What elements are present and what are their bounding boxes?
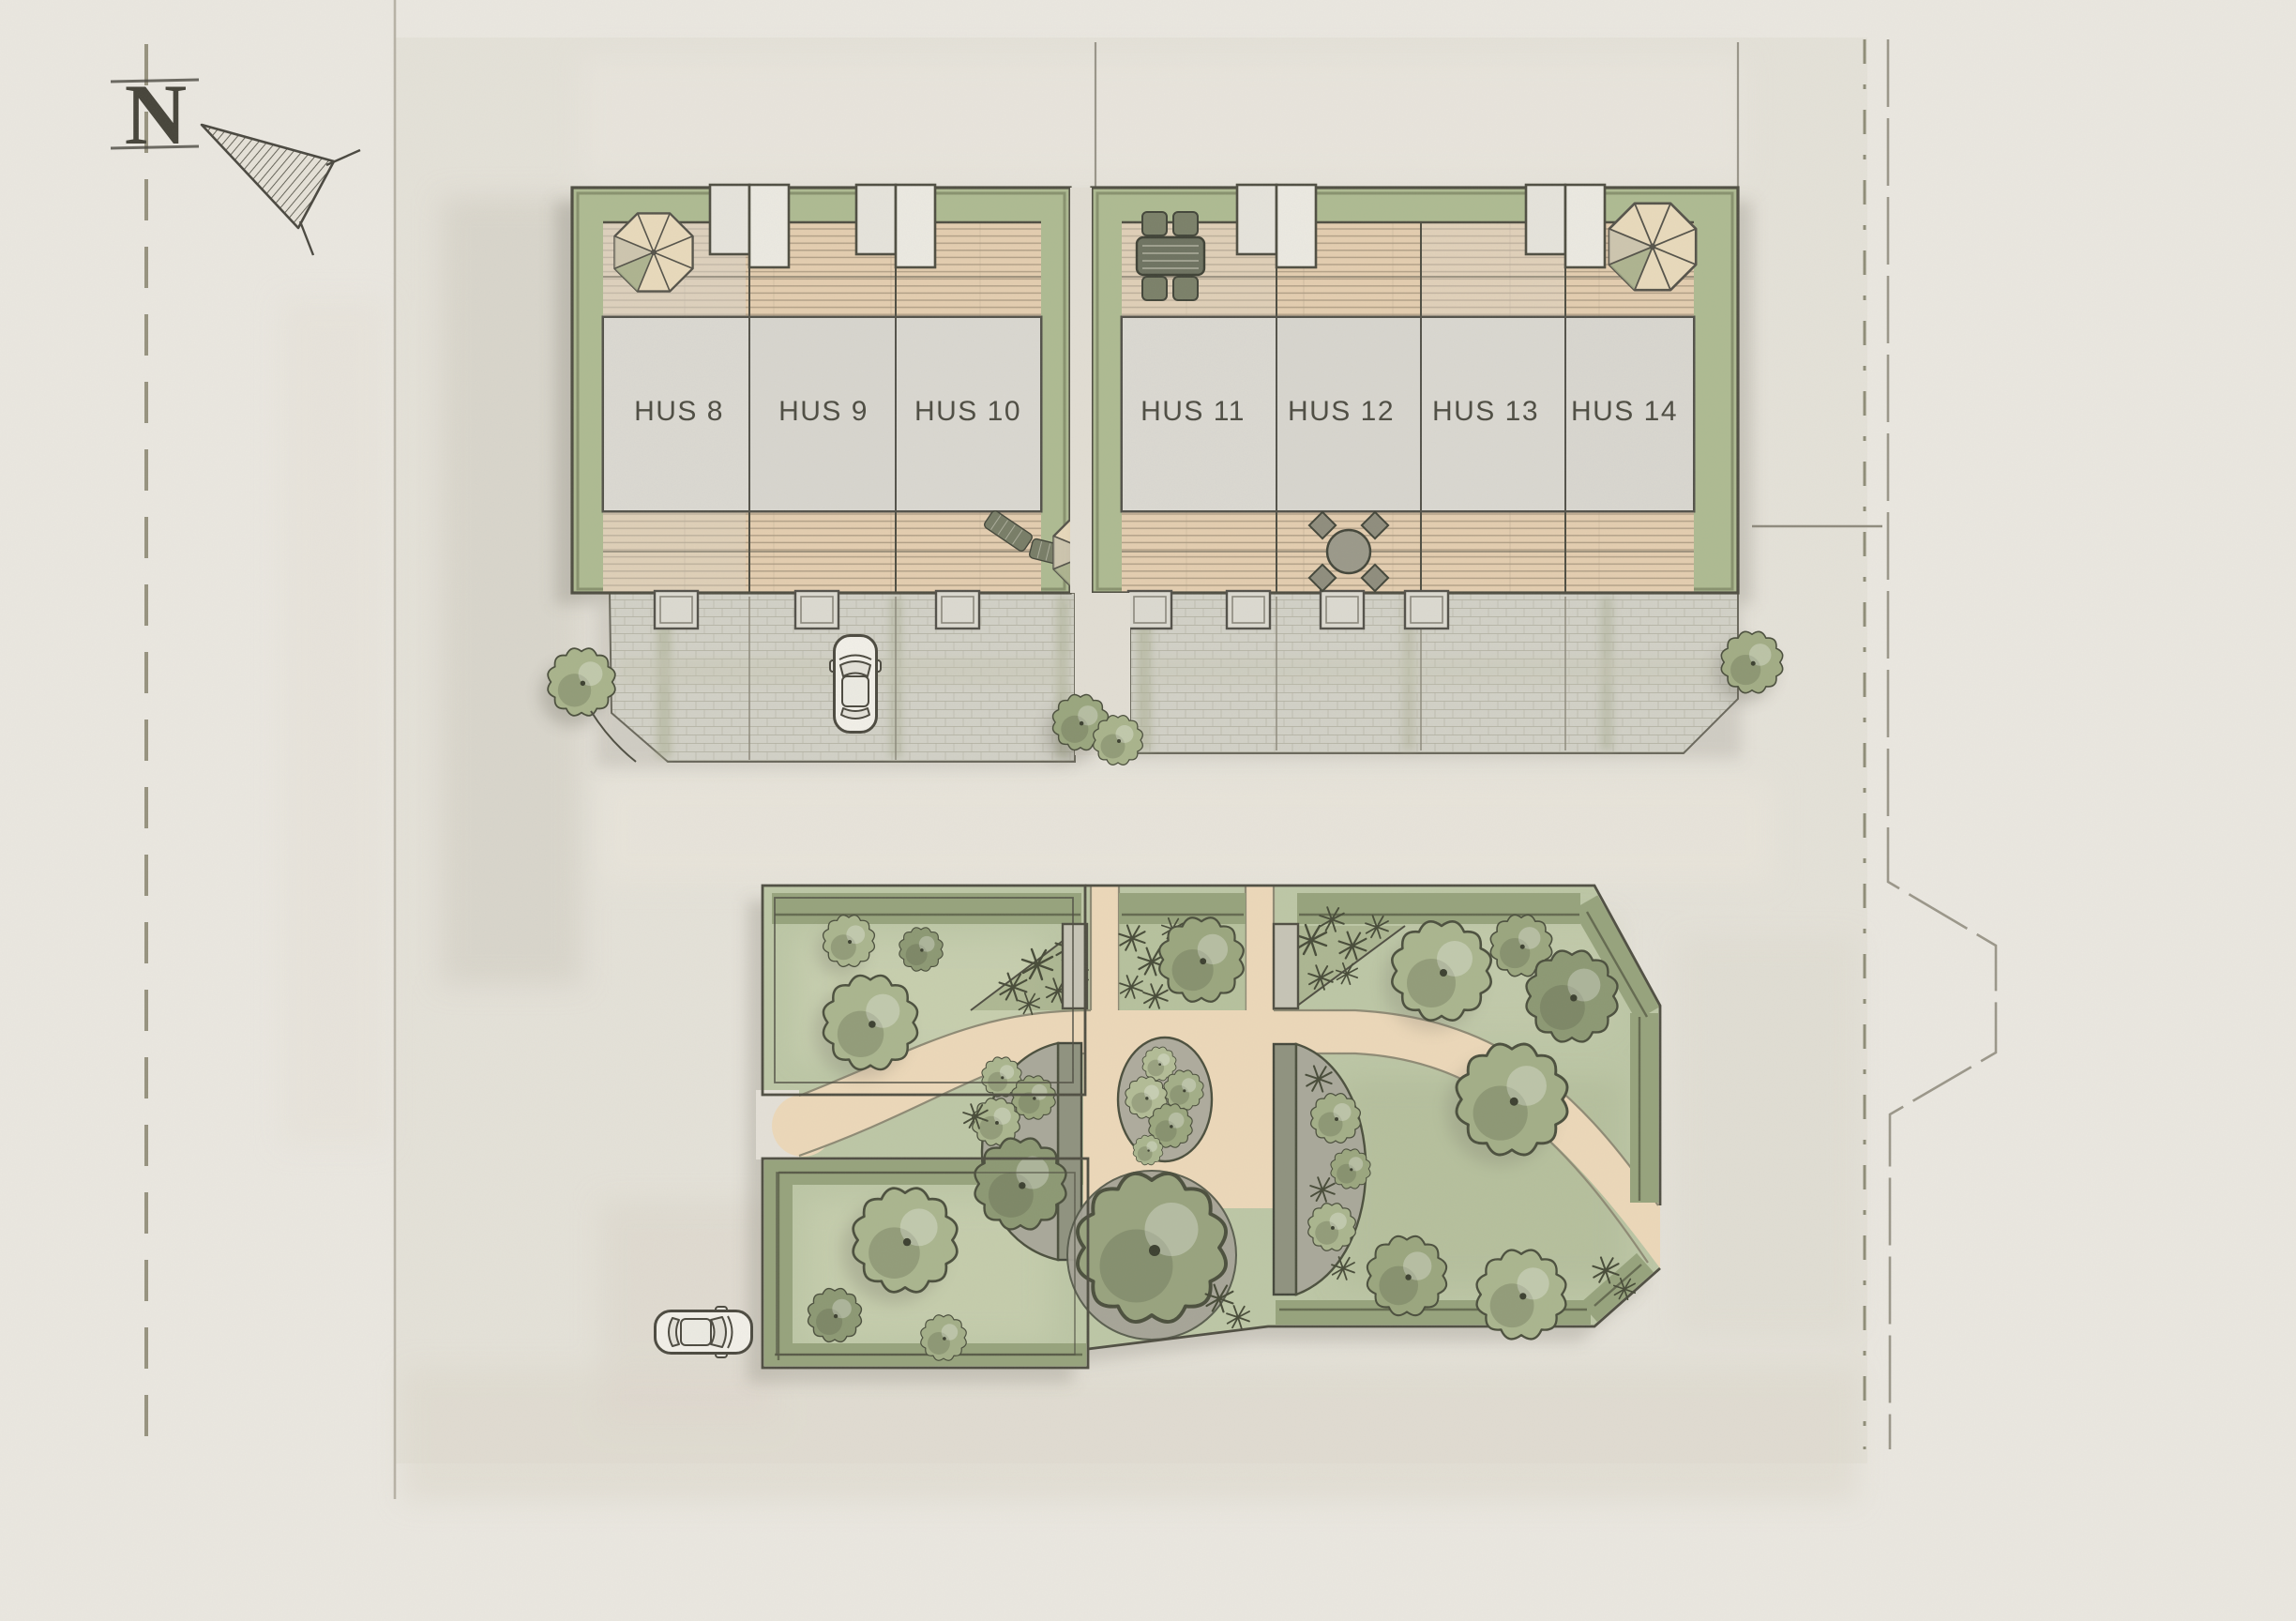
- paper-grain-overlay: [0, 0, 2296, 1621]
- site-plan-canvas: N HUS 8: [0, 0, 2296, 1621]
